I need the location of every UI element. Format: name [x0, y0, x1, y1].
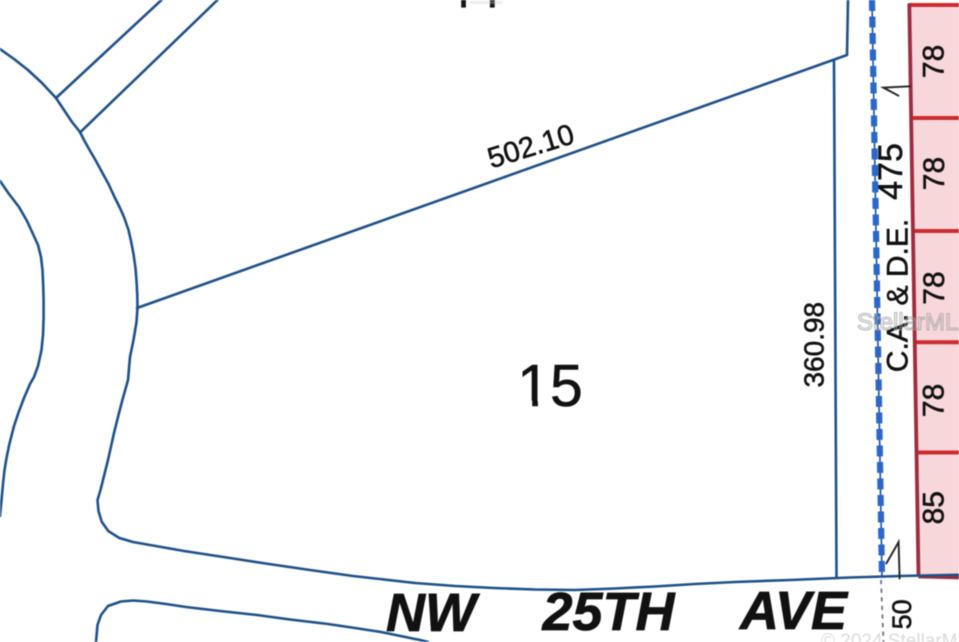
svg-text:78: 78 — [918, 45, 951, 78]
svg-text:85: 85 — [918, 491, 951, 524]
svg-text:78: 78 — [918, 384, 951, 417]
svg-text:StellarMLS: StellarMLS — [857, 309, 959, 336]
svg-text:78: 78 — [918, 271, 951, 304]
svg-text:C.A. & D.E.: C.A. & D.E. — [882, 219, 915, 372]
svg-text:78: 78 — [918, 157, 951, 190]
svg-text:© 2024 StellarML: © 2024 StellarML — [821, 631, 959, 642]
svg-text:475: 475 — [872, 143, 910, 200]
svg-text:25TH: 25TH — [541, 582, 675, 642]
svg-text:NW: NW — [386, 583, 480, 642]
svg-text:360.98: 360.98 — [799, 302, 830, 388]
svg-text:50: 50 — [887, 599, 917, 629]
